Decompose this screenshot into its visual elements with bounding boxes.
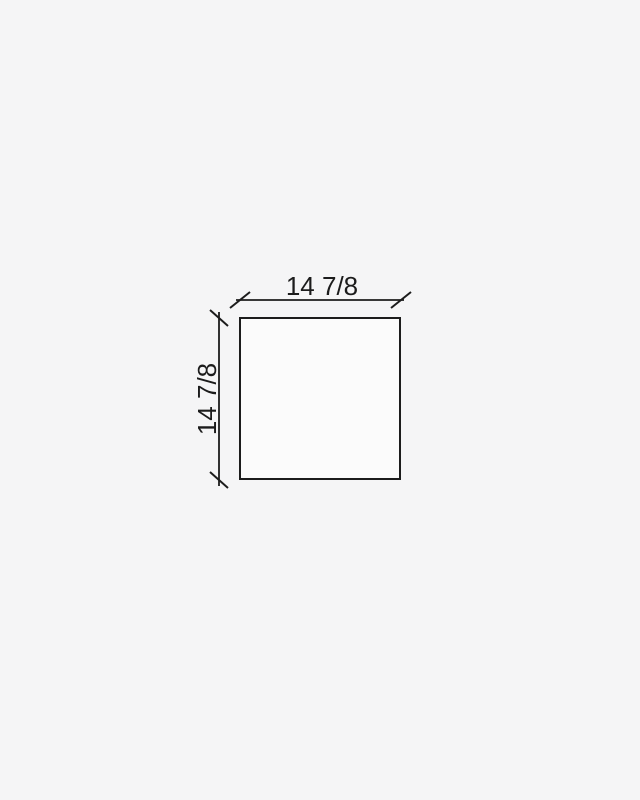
height-dimension-label: 14 7/8 bbox=[192, 363, 222, 435]
width-dimension: 14 7/8 bbox=[230, 271, 411, 308]
square-shape-outline bbox=[240, 318, 400, 479]
dimension-diagram: 14 7/8 14 7/8 bbox=[0, 0, 640, 800]
height-dimension: 14 7/8 bbox=[192, 310, 228, 488]
width-dimension-label: 14 7/8 bbox=[286, 271, 358, 301]
diagram-canvas: 14 7/8 14 7/8 bbox=[0, 0, 640, 800]
